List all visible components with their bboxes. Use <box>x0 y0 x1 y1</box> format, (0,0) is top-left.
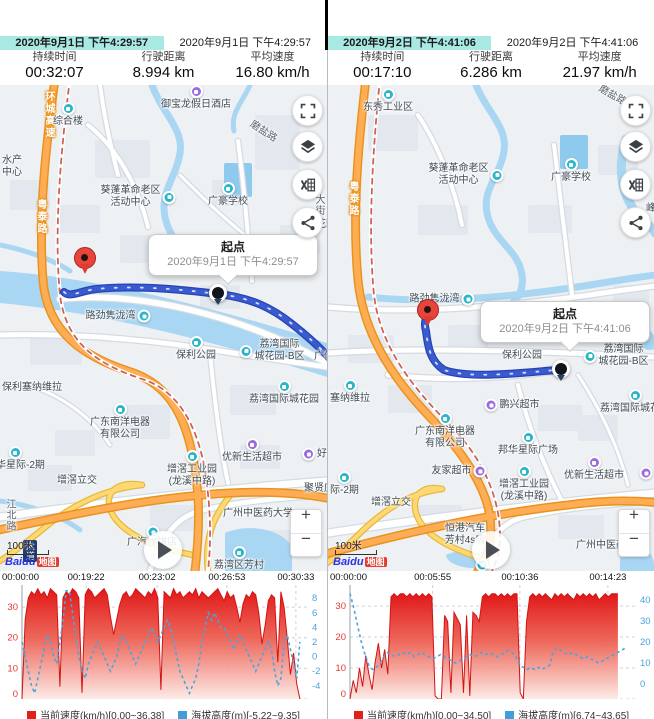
share-icon <box>627 214 645 232</box>
trip-panel-left: 2020年9月1日 下午4:29:57 2020年9月1日 下午4:29:57 … <box>0 0 327 719</box>
x-tick: 00:23:02 <box>139 572 176 583</box>
y-right-tick: 2 <box>312 637 317 648</box>
legend-swatch <box>505 711 514 719</box>
y-right-tick: 30 <box>640 616 651 627</box>
export-excel-icon <box>627 176 645 194</box>
baidu-logo: Baidu地图 <box>5 555 59 568</box>
y-left-tick: 20 <box>335 632 346 643</box>
y-left-tick: 20 <box>7 633 18 644</box>
callout-title: 起点 <box>489 307 641 322</box>
distance-value: 8.994 km <box>109 64 218 82</box>
panel-divider <box>325 0 328 50</box>
legend-swatch <box>178 711 187 719</box>
legend-swatch <box>27 711 36 719</box>
y-left-tick: 30 <box>7 602 18 613</box>
chart-legend: 当前速度(km/h)[0.00~36.38]海拔高度(m)[-5.22~9.35… <box>0 704 327 719</box>
map-canvas <box>0 85 327 571</box>
tab-trip-selected[interactable]: 2020年9月1日 下午4:29:57 <box>0 36 164 50</box>
callout-title: 起点 <box>157 240 309 255</box>
x-tick: 00:14:23 <box>589 572 626 583</box>
trip-stats: 持续时间00:17:10 行驶距离6.286 km 平均速度21.97 km/h <box>328 50 654 85</box>
fullscreen-button[interactable] <box>292 95 323 126</box>
legend-item: 海拔高度(m)[6.74~43.65] <box>505 707 629 719</box>
zoom-control: + − <box>290 509 322 557</box>
zoom-control: + − <box>618 509 650 557</box>
duration-value: 00:17:10 <box>328 64 437 82</box>
y-right-tick: 0 <box>312 652 317 663</box>
distance-value: 6.286 km <box>437 64 546 82</box>
export-excel-icon <box>299 176 317 194</box>
distance-label: 行驶距离 <box>109 51 218 64</box>
play-icon <box>158 541 172 559</box>
legend-swatch <box>354 711 363 719</box>
y-right-tick: 40 <box>640 595 651 606</box>
y-right-tick: 8 <box>312 593 317 604</box>
export-excel-button[interactable] <box>620 169 651 200</box>
start-point-callout[interactable]: 起点 2020年9月1日 下午4:29:57 <box>148 234 318 276</box>
chart-x-axis: 00:00:0000:19:2200:23:0200:26:5300:30:33 <box>0 571 327 585</box>
trip-tabbar: 2020年9月2日 下午4:41:06 2020年9月2日 下午4:41:06 <box>328 36 654 50</box>
tab-trip-selected[interactable]: 2020年9月2日 下午4:41:06 <box>328 36 491 50</box>
start-point-marker[interactable] <box>209 284 227 302</box>
avg-speed-label: 平均速度 <box>218 51 327 64</box>
layers-button[interactable] <box>620 131 651 162</box>
tab-trip-other[interactable]: 2020年9月1日 下午4:29:57 <box>164 36 328 50</box>
play-icon <box>486 541 500 559</box>
dual-trip-comparison: 2020年9月1日 下午4:29:57 2020年9月1日 下午4:29:57 … <box>0 0 654 719</box>
route-start-pin[interactable] <box>417 299 439 329</box>
avg-speed-value: 16.80 km/h <box>218 64 327 82</box>
x-tick: 00:26:53 <box>208 572 245 583</box>
layers-icon <box>299 138 317 156</box>
y-right-tick: 6 <box>312 608 317 619</box>
zoom-out-button[interactable]: − <box>619 534 649 557</box>
duration-value: 00:32:07 <box>0 64 109 82</box>
y-right-tick: 0 <box>640 679 645 690</box>
avg-speed-value: 21.97 km/h <box>545 64 654 82</box>
x-tick: 00:10:36 <box>501 572 538 583</box>
play-route-button[interactable] <box>472 531 510 569</box>
speed-elevation-chart[interactable]: 00:00:0000:05:5500:10:3600:14:23 0102030… <box>328 571 654 719</box>
y-left-tick: 0 <box>13 689 18 699</box>
tab-trip-other[interactable]: 2020年9月2日 下午4:41:06 <box>491 36 654 50</box>
y-right-tick: 20 <box>640 637 651 648</box>
speed-elevation-chart[interactable]: 00:00:0000:19:2200:23:0200:26:5300:30:33… <box>0 571 327 719</box>
share-icon <box>299 214 317 232</box>
top-gap <box>328 0 654 36</box>
trip-tabbar: 2020年9月1日 下午4:29:57 2020年9月1日 下午4:29:57 <box>0 36 327 50</box>
chart-plot: 0102030-4-202468 <box>0 585 327 699</box>
chart-x-axis: 00:00:0000:05:5500:10:3600:14:23 <box>328 571 654 585</box>
chart-legend: 当前速度(km/h)[0.00~34.50]海拔高度(m)[6.74~43.65… <box>328 704 654 719</box>
legend-item: 当前速度(km/h)[0.00~34.50] <box>354 707 491 719</box>
fullscreen-icon <box>627 102 645 120</box>
baidu-logo: Baidu地图 <box>333 555 387 568</box>
top-gap <box>0 0 327 36</box>
avg-speed-label: 平均速度 <box>545 51 654 64</box>
chart-plot: 0102030010203040 <box>328 585 654 699</box>
share-button[interactable] <box>620 207 651 238</box>
x-tick: 00:19:22 <box>68 572 105 583</box>
x-tick: 00:00:00 <box>330 572 367 583</box>
y-right-tick: 4 <box>312 622 317 633</box>
legend-item: 当前速度(km/h)[0.00~36.38] <box>27 707 164 719</box>
y-right-tick: -2 <box>312 666 320 677</box>
play-route-button[interactable] <box>144 531 182 569</box>
duration-label: 持续时间 <box>328 51 437 64</box>
legend-item: 海拔高度(m)[-5.22~9.35] <box>178 707 300 719</box>
y-left-tick: 10 <box>335 663 346 674</box>
x-tick: 00:00:00 <box>2 572 39 583</box>
trip-panel-right: 2020年9月2日 下午4:41:06 2020年9月2日 下午4:41:06 … <box>327 0 654 719</box>
fullscreen-icon <box>299 102 317 120</box>
share-button[interactable] <box>292 207 323 238</box>
callout-subtitle: 2020年9月2日 下午4:41:06 <box>489 322 641 336</box>
y-left-tick: 10 <box>7 663 18 674</box>
layers-button[interactable] <box>292 131 323 162</box>
y-right-tick: -4 <box>312 681 320 692</box>
export-excel-button[interactable] <box>292 169 323 200</box>
zoom-out-button[interactable]: − <box>291 534 321 557</box>
x-tick: 00:05:55 <box>414 572 451 583</box>
start-point-marker[interactable] <box>552 360 570 378</box>
y-left-tick: 0 <box>341 689 346 699</box>
y-left-tick: 30 <box>335 601 346 612</box>
y-right-tick: 10 <box>640 658 651 669</box>
start-point-callout[interactable]: 起点 2020年9月2日 下午4:41:06 <box>480 301 650 343</box>
trip-stats: 持续时间00:32:07 行驶距离8.994 km 平均速度16.80 km/h <box>0 50 327 85</box>
x-tick: 00:30:33 <box>277 572 314 583</box>
distance-label: 行驶距离 <box>437 51 546 64</box>
layers-icon <box>627 138 645 156</box>
callout-subtitle: 2020年9月1日 下午4:29:57 <box>157 255 309 269</box>
map-view[interactable]: 环城高速综合楼御宝龙假日酒店磨盐路水产中心葵蓬革命老区活动中心广豪学校粤泰路大街… <box>0 85 327 571</box>
fullscreen-button[interactable] <box>620 95 651 126</box>
route-start-pin[interactable] <box>74 247 96 277</box>
duration-label: 持续时间 <box>0 51 109 64</box>
map-view[interactable]: 东秀工业区磨盐路葵蓬革命老区活动中心广豪学校粤泰路峰越花园路劲隽泷湾保利公园荔湾… <box>328 85 654 571</box>
